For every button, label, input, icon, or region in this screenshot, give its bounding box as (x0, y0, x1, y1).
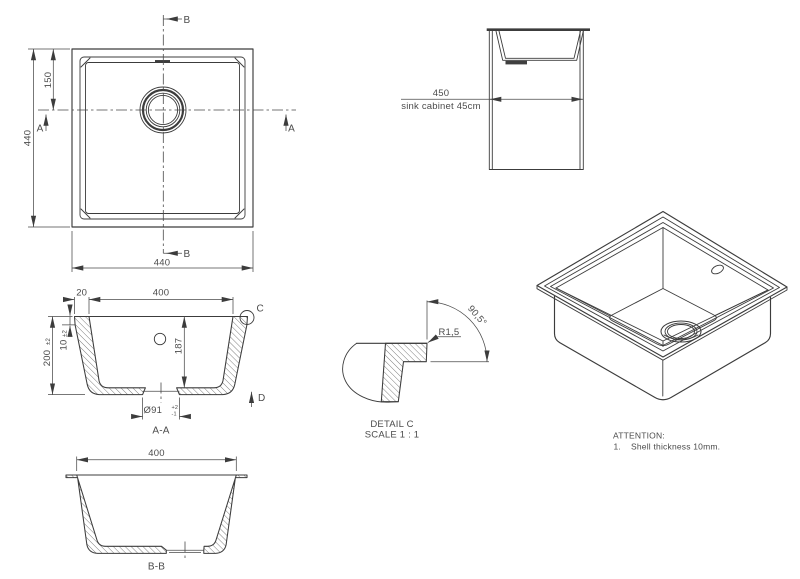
section-label-a-right: A (288, 124, 295, 135)
section-aa-label: A-A (152, 426, 169, 437)
section-bb-label: B-B (148, 562, 165, 573)
dim-flange-tol: ±2 (63, 330, 69, 337)
dim-height-200: 200 (42, 350, 53, 366)
drain-boss (506, 61, 528, 65)
cabinet-view: 450 sink cabinet 45cm (401, 30, 590, 170)
dim-drain-dia: Ø91 (144, 405, 163, 416)
dim-depth-187: 187 (173, 338, 184, 354)
dim-height-440: 440 (23, 130, 34, 146)
cabinet-walls (489, 31, 583, 170)
section-bb-view: 400 B-B (66, 448, 247, 572)
attention-note-number: 1. (614, 442, 622, 452)
section-marker-a-right: A (286, 115, 295, 135)
section-label-a-left: A (37, 124, 44, 135)
sink-rim-edge (80, 57, 245, 219)
bowl-corner-chamfers (81, 58, 244, 218)
bowl-opening (556, 228, 768, 342)
section-label-b-bottom: B (184, 249, 191, 260)
cabinet-caption: sink cabinet 45cm (401, 101, 480, 112)
section-wall-right (177, 317, 248, 395)
angle-label: 90,5° (465, 303, 489, 328)
radius-dimension: R1,5 (428, 327, 461, 343)
attention-note-text: Shell thickness 10mm. (631, 442, 720, 452)
detail-c-view: 90,5° R1,5 DETAIL C SCALE 1 : 1 (343, 301, 489, 441)
section-bb-wall-right (204, 475, 247, 553)
sink-technical-drawing: B B A A 440 150 440 (0, 0, 800, 579)
detail-c-scale: SCALE 1 : 1 (365, 430, 419, 441)
technical-drawing-page: B B A A 440 150 440 (0, 0, 800, 579)
isometric-view (537, 212, 787, 400)
section-aa-view: C D 20 400 200 ±2 10 ±2 187 (42, 288, 266, 437)
bowl-bottom (610, 289, 717, 346)
section-aa-dimensions: 20 400 200 ±2 10 ±2 187 Ø91 +2 -1 (42, 288, 233, 420)
section-bb-dimension: 400 (77, 448, 237, 471)
sink-outer-edge (72, 49, 253, 227)
drain-3d (661, 321, 701, 342)
radius-label: R1,5 (439, 327, 460, 338)
section-label-b-top: B (184, 15, 191, 26)
rim-inner (551, 223, 774, 346)
dim-width-440: 440 (154, 258, 170, 269)
dim-flange-10: 10 (59, 340, 70, 351)
overflow-hole (154, 333, 165, 344)
dim-drain-tol-plus: +2 (172, 405, 179, 411)
section-marker-b-top: B (163, 15, 190, 26)
dim-cabinet-450: 450 (433, 88, 449, 99)
dim-drain-offset-150: 150 (43, 72, 54, 88)
centerlines (38, 15, 296, 253)
overflow-hole-3d (710, 263, 725, 275)
view-d-marker: D (252, 392, 266, 407)
sink-bowl-edge (86, 63, 240, 214)
rim-middle (545, 217, 780, 351)
attention-title: ATTENTION: (613, 431, 665, 441)
section-bb-wall-left (66, 475, 166, 553)
dim-inner-400: 400 (153, 288, 169, 299)
dim-height-tol: ±2 (46, 338, 52, 345)
detail-c-title: DETAIL C (370, 419, 413, 430)
sink-bowl-profile (496, 31, 583, 60)
section-marker-a-left: A (37, 115, 46, 135)
section-wall-left (75, 317, 146, 395)
attention-note: ATTENTION: 1. Shell thickness 10mm. (613, 431, 720, 452)
view-marker-label: D (258, 393, 265, 404)
top-view: B B A A 440 150 440 (23, 15, 297, 272)
detail-wall-section (381, 343, 427, 401)
plan-dimensions: 440 150 440 (23, 49, 254, 272)
dim-inner-400-bb: 400 (148, 448, 164, 459)
detail-marker-label: C (257, 304, 264, 315)
dim-drain-tol-minus: -1 (172, 412, 177, 418)
dim-rim-20: 20 (76, 288, 87, 299)
